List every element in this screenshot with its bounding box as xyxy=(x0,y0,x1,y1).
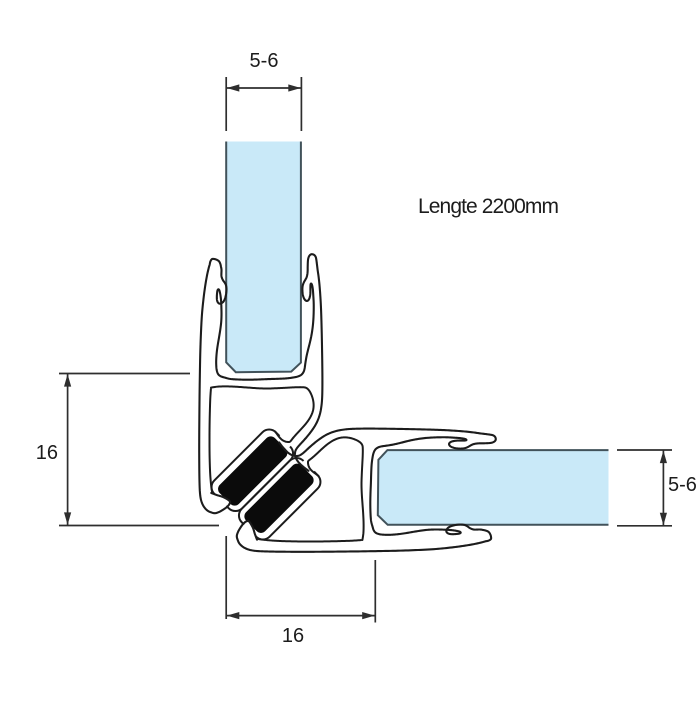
svg-text:16: 16 xyxy=(282,625,304,647)
svg-text:16: 16 xyxy=(36,442,58,464)
svg-text:Lengte 2200mm: Lengte 2200mm xyxy=(418,195,558,218)
svg-text:5-6: 5-6 xyxy=(668,474,697,496)
svg-text:5-6: 5-6 xyxy=(250,50,279,72)
